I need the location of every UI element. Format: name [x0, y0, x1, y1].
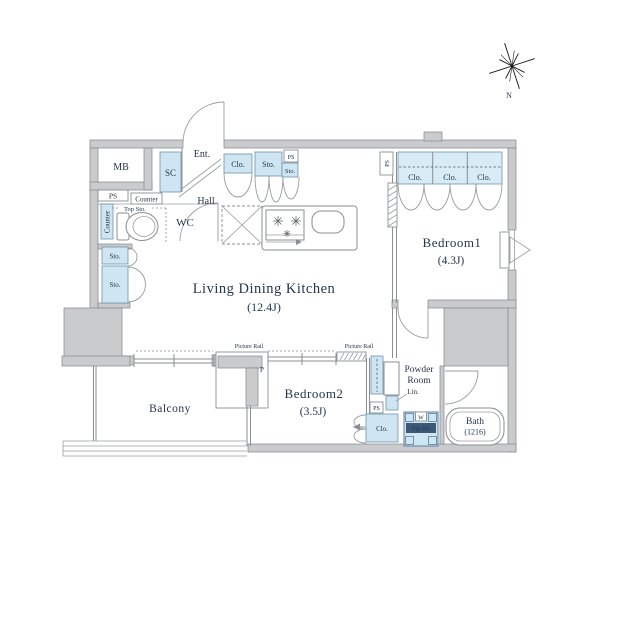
wc-label: WC [176, 217, 194, 229]
sto-label: Sto. [109, 281, 120, 289]
sc-label: SC [165, 168, 176, 178]
clo-label: Clo. [408, 173, 422, 182]
counter-label: Counter [135, 196, 158, 204]
clo-label: Clo. [477, 173, 491, 182]
floor-plan-svg: SC Clo. Sto. Sto. Sto. Sto. Counter Clo.… [0, 0, 640, 639]
bedroom1-size: (4.3J) [438, 255, 465, 267]
north-label: N [506, 91, 512, 100]
bath-door [445, 371, 478, 404]
bedroom2-name: Bedroom2 [285, 386, 344, 401]
bath-name: Bath [466, 417, 484, 427]
picture-rail-label: Picture Rail [345, 344, 374, 350]
pillar-left [64, 308, 122, 358]
washer-label: W [418, 416, 424, 422]
bedroom1-window [500, 230, 530, 270]
counter-vertical-label: Counter [104, 210, 112, 233]
burner [291, 216, 301, 226]
bedroom1-sliding-door [388, 183, 397, 227]
closet-direction-arrow [353, 424, 360, 431]
kitchen [222, 206, 357, 250]
compass: N [482, 36, 542, 100]
linen-closet [386, 396, 398, 410]
ps-label: PS [288, 155, 295, 161]
ldk-name: Living Dining Kitchen [193, 281, 336, 297]
balcony-railing [63, 441, 247, 456]
sto-label: Sto. [109, 253, 120, 261]
hall-label: Hall [197, 196, 214, 207]
clo-label: Clo. [231, 160, 245, 169]
sto-label: Sto. [262, 160, 275, 169]
top-sto-label: Top Sto. [124, 206, 146, 213]
picture-rail-label: Picture Rail [235, 344, 264, 350]
sink [312, 211, 344, 233]
bedroom1-name: Bedroom1 [423, 235, 482, 250]
mb-label: MB [113, 162, 129, 173]
bedroom1-closet-arcs [398, 184, 424, 210]
bedroom2-size: (3.5J) [300, 406, 327, 418]
bath-size: (1216) [464, 428, 486, 437]
closet-door-arc [224, 173, 252, 197]
clo-label: Clo. [443, 173, 457, 182]
window-swing-triangle [510, 237, 530, 263]
powder-room-label-1: Powder [404, 365, 434, 375]
top-sto-label: Top Sto. [411, 427, 431, 433]
entrance-step [179, 159, 221, 191]
void-block [444, 308, 508, 366]
bedroom1-closets: Clo. Clo. Clo. [398, 152, 502, 184]
ps-label: PS [385, 160, 391, 167]
burner-small [284, 230, 291, 237]
lin-label: Lin. [407, 388, 419, 396]
powder-room-label-2: Room [407, 376, 431, 386]
toilet [117, 213, 158, 241]
balcony-label: Balcony [149, 403, 191, 415]
washbasin [384, 362, 399, 395]
bedroom2-sliding-pocket [337, 352, 367, 361]
burner [273, 216, 283, 226]
sto-left-door-arc [128, 248, 137, 266]
ent-label: Ent. [194, 149, 210, 160]
storage-door-arc [255, 176, 269, 202]
washer-space: W Top Sto. [404, 412, 438, 446]
floor-plan: SC Clo. Sto. Sto. Sto. Sto. Counter Clo.… [0, 0, 640, 639]
ps-label: PS [109, 192, 117, 201]
ps-label: PS [373, 406, 380, 412]
p-label: P [260, 366, 264, 374]
clo-label: Clo. [376, 425, 388, 433]
powder-room-door [398, 308, 428, 338]
sto-label: Sto. [285, 168, 296, 175]
ldk-size: (12.4J) [247, 300, 281, 314]
